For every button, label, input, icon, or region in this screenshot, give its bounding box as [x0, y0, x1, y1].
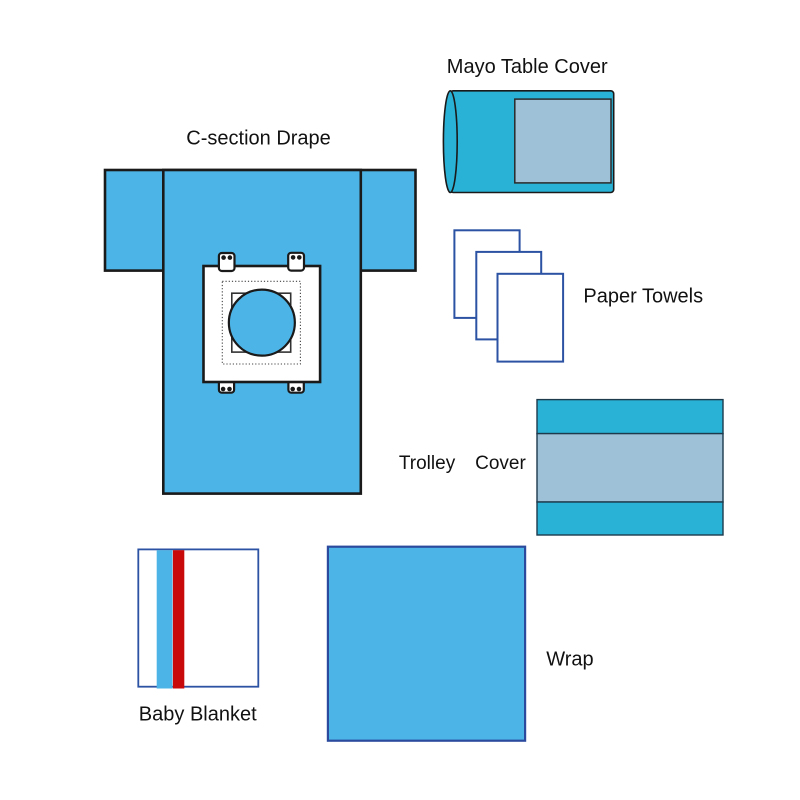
svg-text:Paper Towels: Paper Towels — [583, 286, 703, 308]
svg-text:Trolley: Trolley — [399, 453, 456, 474]
svg-text:Wrap: Wrap — [546, 649, 593, 671]
svg-text:Cover: Cover — [475, 453, 526, 474]
svg-text:C-section Drape: C-section Drape — [186, 128, 331, 150]
svg-text:Mayo Table Cover: Mayo Table Cover — [447, 56, 608, 78]
svg-text:Baby Blanket: Baby Blanket — [139, 703, 257, 725]
